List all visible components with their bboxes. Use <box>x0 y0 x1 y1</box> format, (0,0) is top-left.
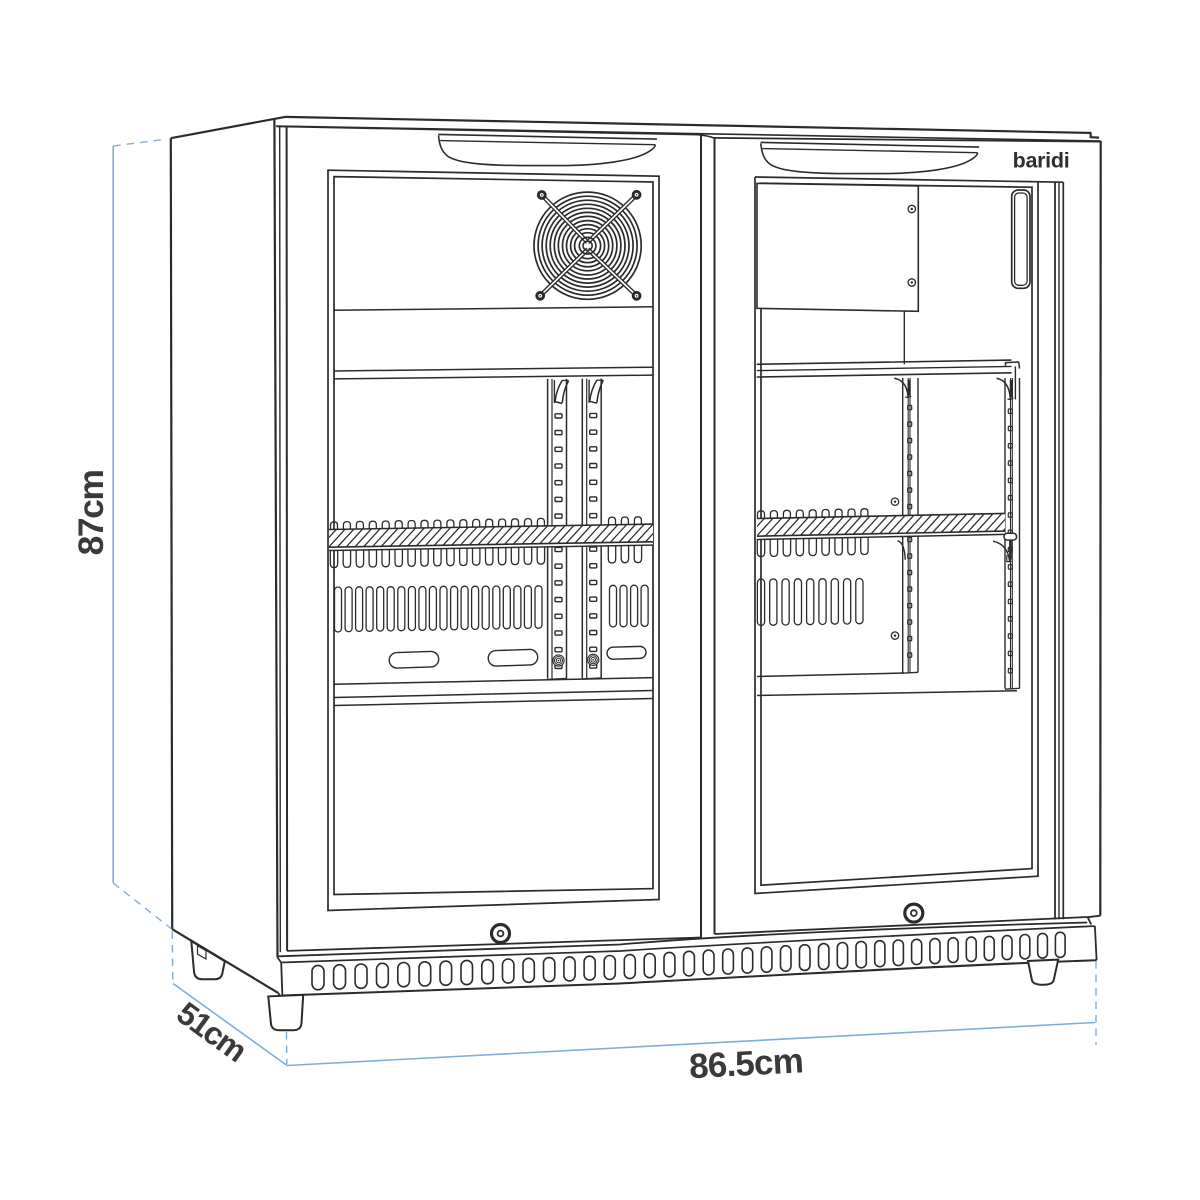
svg-text:87cm: 87cm <box>71 471 111 556</box>
svg-text:baridi: baridi <box>1013 149 1070 173</box>
svg-text:86.5cm: 86.5cm <box>688 1041 804 1086</box>
